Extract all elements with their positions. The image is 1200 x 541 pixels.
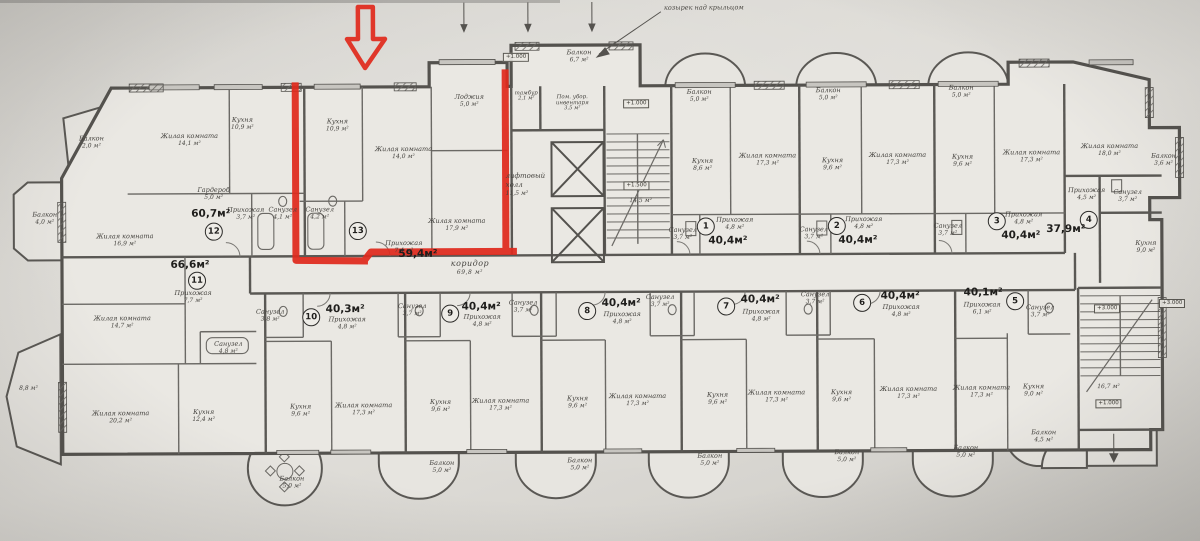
room-label: Санузел3,7 м² — [398, 302, 427, 318]
apartment-area-total: 60,7м² — [191, 208, 230, 220]
apartment-badge: 7 — [717, 297, 735, 315]
apartment-badge: 5 — [1006, 292, 1024, 310]
room-label: Санузел4,2 м² — [305, 205, 334, 221]
apartment-badge: 6 — [853, 294, 871, 312]
room-label: Жилая комната17,3 м² — [472, 396, 529, 412]
room-label: Прихожая4,5 м² — [1068, 186, 1105, 202]
room-label: Жилая комната17,3 м² — [869, 151, 926, 167]
floor-plan-photo: козырек над крыльцом 1260,7м²Балкон2,0 м… — [0, 0, 1200, 541]
room-label: Кухня8,6 м² — [692, 157, 713, 173]
apartment-badge: 1 — [697, 217, 715, 235]
room-label: Прихожая4,8 м² — [604, 310, 641, 326]
room-label: Прихожая4,8 м² — [1005, 210, 1042, 226]
room-label: Жилая комната14,7 м² — [94, 314, 151, 330]
room-label: Санузел3,7 м² — [800, 225, 829, 241]
room-label: Санузел3,7 м² — [509, 298, 538, 314]
room-label: Гардероб5,0 м² — [197, 186, 229, 202]
room-label: Жилая комната17,3 м² — [953, 383, 1010, 399]
room-label: Кухня9,6 м² — [290, 402, 311, 418]
apartment-area-total: 40,1м² — [964, 286, 1003, 298]
room-label: Жилая комната18,0 м² — [1081, 142, 1138, 158]
apartment-badge: 12 — [205, 223, 223, 241]
elevation-marker: +3.000 — [1094, 304, 1120, 313]
room-label: Прихожая4,8 м² — [743, 307, 780, 323]
room-label: Санузел3,8 м² — [256, 308, 285, 324]
room-label: Балкон3,6 м² — [1151, 152, 1176, 168]
room-label: Балкон5,0 м² — [953, 444, 978, 460]
elevation-marker: +1.000 — [623, 99, 649, 108]
apartment-area-total: 40,4м² — [741, 293, 780, 305]
common-area-label: коридор69,8 м² — [451, 259, 489, 277]
room-label: Жилая комната16,9 м² — [96, 232, 153, 248]
room-label: Балкон5,0 м² — [697, 452, 722, 468]
apartment-area-total: 40,4м² — [462, 300, 501, 312]
room-label: Санузел3,7 м² — [801, 290, 830, 306]
room-label: Прихожая3,7 м² — [227, 206, 264, 222]
room-label: Прихожая4,8 м² — [464, 313, 501, 329]
room-label: Жилая комната14,1 м² — [161, 132, 218, 148]
apartment-badge: 8 — [578, 302, 596, 320]
room-label: Кухня9,0 м² — [1135, 239, 1156, 255]
apartment-area-total: 40,4м² — [881, 290, 920, 302]
room-label: Жилая комната17,3 м² — [609, 392, 666, 408]
common-area-label: лифтовый холл11,5 м² — [506, 172, 562, 197]
room-label: Балкон2,0 м² — [79, 134, 104, 150]
apartment-badge: 10 — [302, 308, 320, 326]
room-label: Кухня9,6 м² — [831, 388, 852, 404]
room-label: Кухня10,9 м² — [231, 116, 254, 132]
common-area-label: Пом. убор. инвентаря3,5 м² — [549, 94, 595, 112]
apartment-badge: 3 — [988, 212, 1006, 230]
apartment-area-total: 40,3м² — [326, 303, 365, 315]
apartment-badge: 2 — [828, 217, 846, 235]
room-label: Кухня9,6 м² — [822, 156, 843, 172]
room-label: Санузел3,7 м² — [934, 222, 963, 238]
room-label: Лоджия5,0 м² — [455, 93, 484, 109]
highlight-arrow — [347, 7, 385, 68]
room-label: Прихожая7,7 м² — [174, 289, 211, 305]
canopy-annotation: козырек над крыльцом — [664, 3, 744, 11]
room-label: Кухня9,6 м² — [707, 391, 728, 407]
room-label: Жилая комната17,3 м² — [1003, 148, 1060, 164]
elevation-marker: +3.000 — [1159, 299, 1185, 308]
room-label: Балкон4,5 м² — [1031, 428, 1056, 444]
apartment-area-total: 40,4м² — [1001, 229, 1040, 241]
room-label: Жилая комната20,2 м² — [92, 409, 149, 425]
room-label: Кухня9,6 м² — [430, 398, 451, 414]
room-label: Кухня9,6 м² — [567, 394, 588, 410]
room-label: Санузел3,7 м² — [669, 226, 698, 242]
room-label: Балкон5,0 м² — [279, 474, 304, 490]
apartment-badge: 9 — [441, 305, 459, 323]
room-label: Жилая комната17,3 м² — [880, 385, 937, 401]
apartment-area-total: 66,6м² — [170, 259, 209, 271]
floor-plan: козырек над крыльцом 1260,7м²Балкон2,0 м… — [0, 0, 1200, 541]
room-label: Санузел4,1 м² — [268, 206, 297, 222]
room-label: Прихожая6,1 м² — [964, 300, 1001, 316]
apartment-area-total: 40,4м² — [602, 297, 641, 309]
room-label: Прихожая4,8 м² — [845, 215, 882, 231]
room-label: Санузел3,7 м² — [646, 293, 675, 309]
common-area-label: тамбур2,1 м² — [515, 90, 538, 102]
room-label: Балкон5,0 м² — [567, 456, 592, 472]
room-label: Санузел4,8 м² — [214, 340, 243, 356]
room-label: Жилая комната17,9 м² — [428, 217, 485, 233]
room-label: Жилая комната14,0 м² — [375, 145, 432, 161]
room-label: Жилая комната17,3 м² — [739, 151, 796, 167]
apartment-area-total: 40,4м² — [708, 234, 747, 246]
room-label: Балкон5,0 м² — [687, 88, 712, 104]
common-area-label: 16,7 м² — [1097, 383, 1120, 391]
room-label: Кухня12,4 м² — [192, 408, 215, 424]
apartment-badge: 13 — [349, 222, 367, 240]
room-label: 8,8 м² — [19, 385, 38, 393]
room-label: Жилая комната17,3 м² — [335, 401, 392, 417]
elevation-marker: +1.500 — [623, 181, 649, 190]
apartment-area-total: 37,9м² — [1046, 223, 1085, 235]
room-label: Балкон5,0 м² — [429, 459, 454, 475]
room-label: Санузел3,7 м² — [1113, 188, 1142, 204]
elevation-marker: +1.000 — [1095, 399, 1121, 408]
room-label: Кухня9,0 м² — [1023, 382, 1044, 398]
room-label: Прихожая4,8 м² — [329, 315, 366, 331]
room-label: Кухня10,9 м² — [326, 117, 349, 133]
elevation-marker: +1.000 — [503, 53, 529, 62]
room-label: Балкон5,0 м² — [949, 84, 974, 100]
common-area-label: 14,5 м² — [629, 197, 652, 205]
apartment-area-total: 59,4м² — [398, 248, 437, 260]
apartment-badge: 11 — [188, 272, 206, 290]
room-label: Жилая комната17,3 м² — [748, 388, 805, 404]
room-label: Прихожая4,8 м² — [716, 216, 753, 232]
common-area-label: Балкон6,7 м² — [567, 48, 592, 64]
room-label: Балкон5,0 м² — [834, 448, 859, 464]
room-label: Балкон4,0 м² — [32, 211, 57, 227]
room-label: Кухня9,6 м² — [952, 153, 973, 169]
room-label: Прихожая4,8 м² — [883, 303, 920, 319]
apartment-area-total: 40,4м² — [838, 234, 877, 246]
room-label: Балкон5,0 м² — [816, 86, 841, 102]
room-label: Санузел3,7 м² — [1026, 303, 1055, 319]
